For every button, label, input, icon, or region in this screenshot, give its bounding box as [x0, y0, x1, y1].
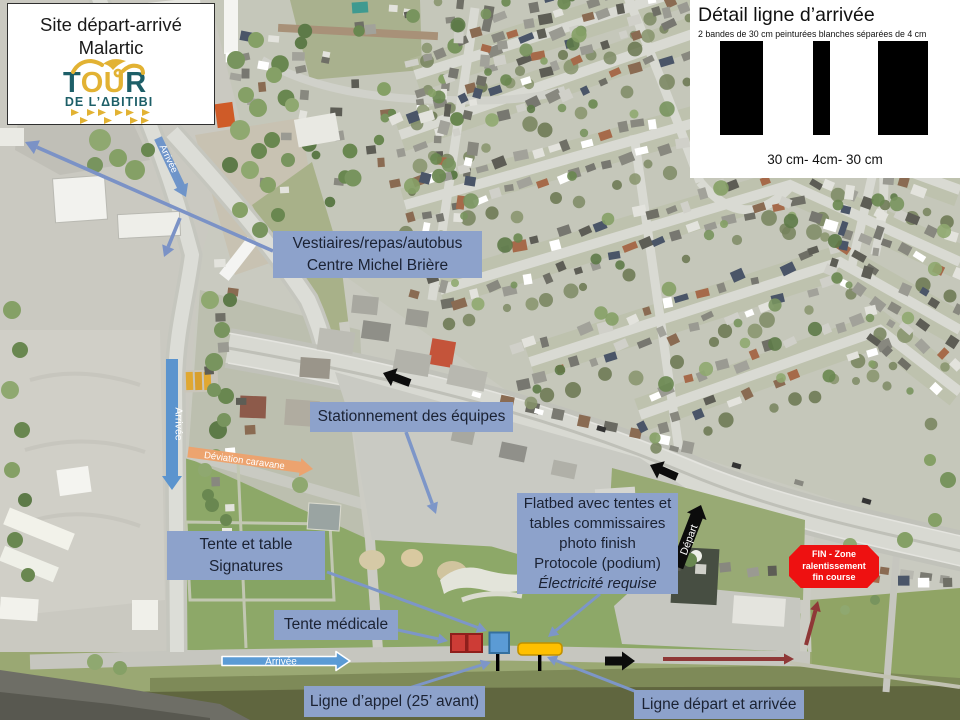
svg-text:Arrivée: Arrivée [173, 407, 185, 440]
svg-text:Arrivée: Arrivée [265, 657, 297, 668]
